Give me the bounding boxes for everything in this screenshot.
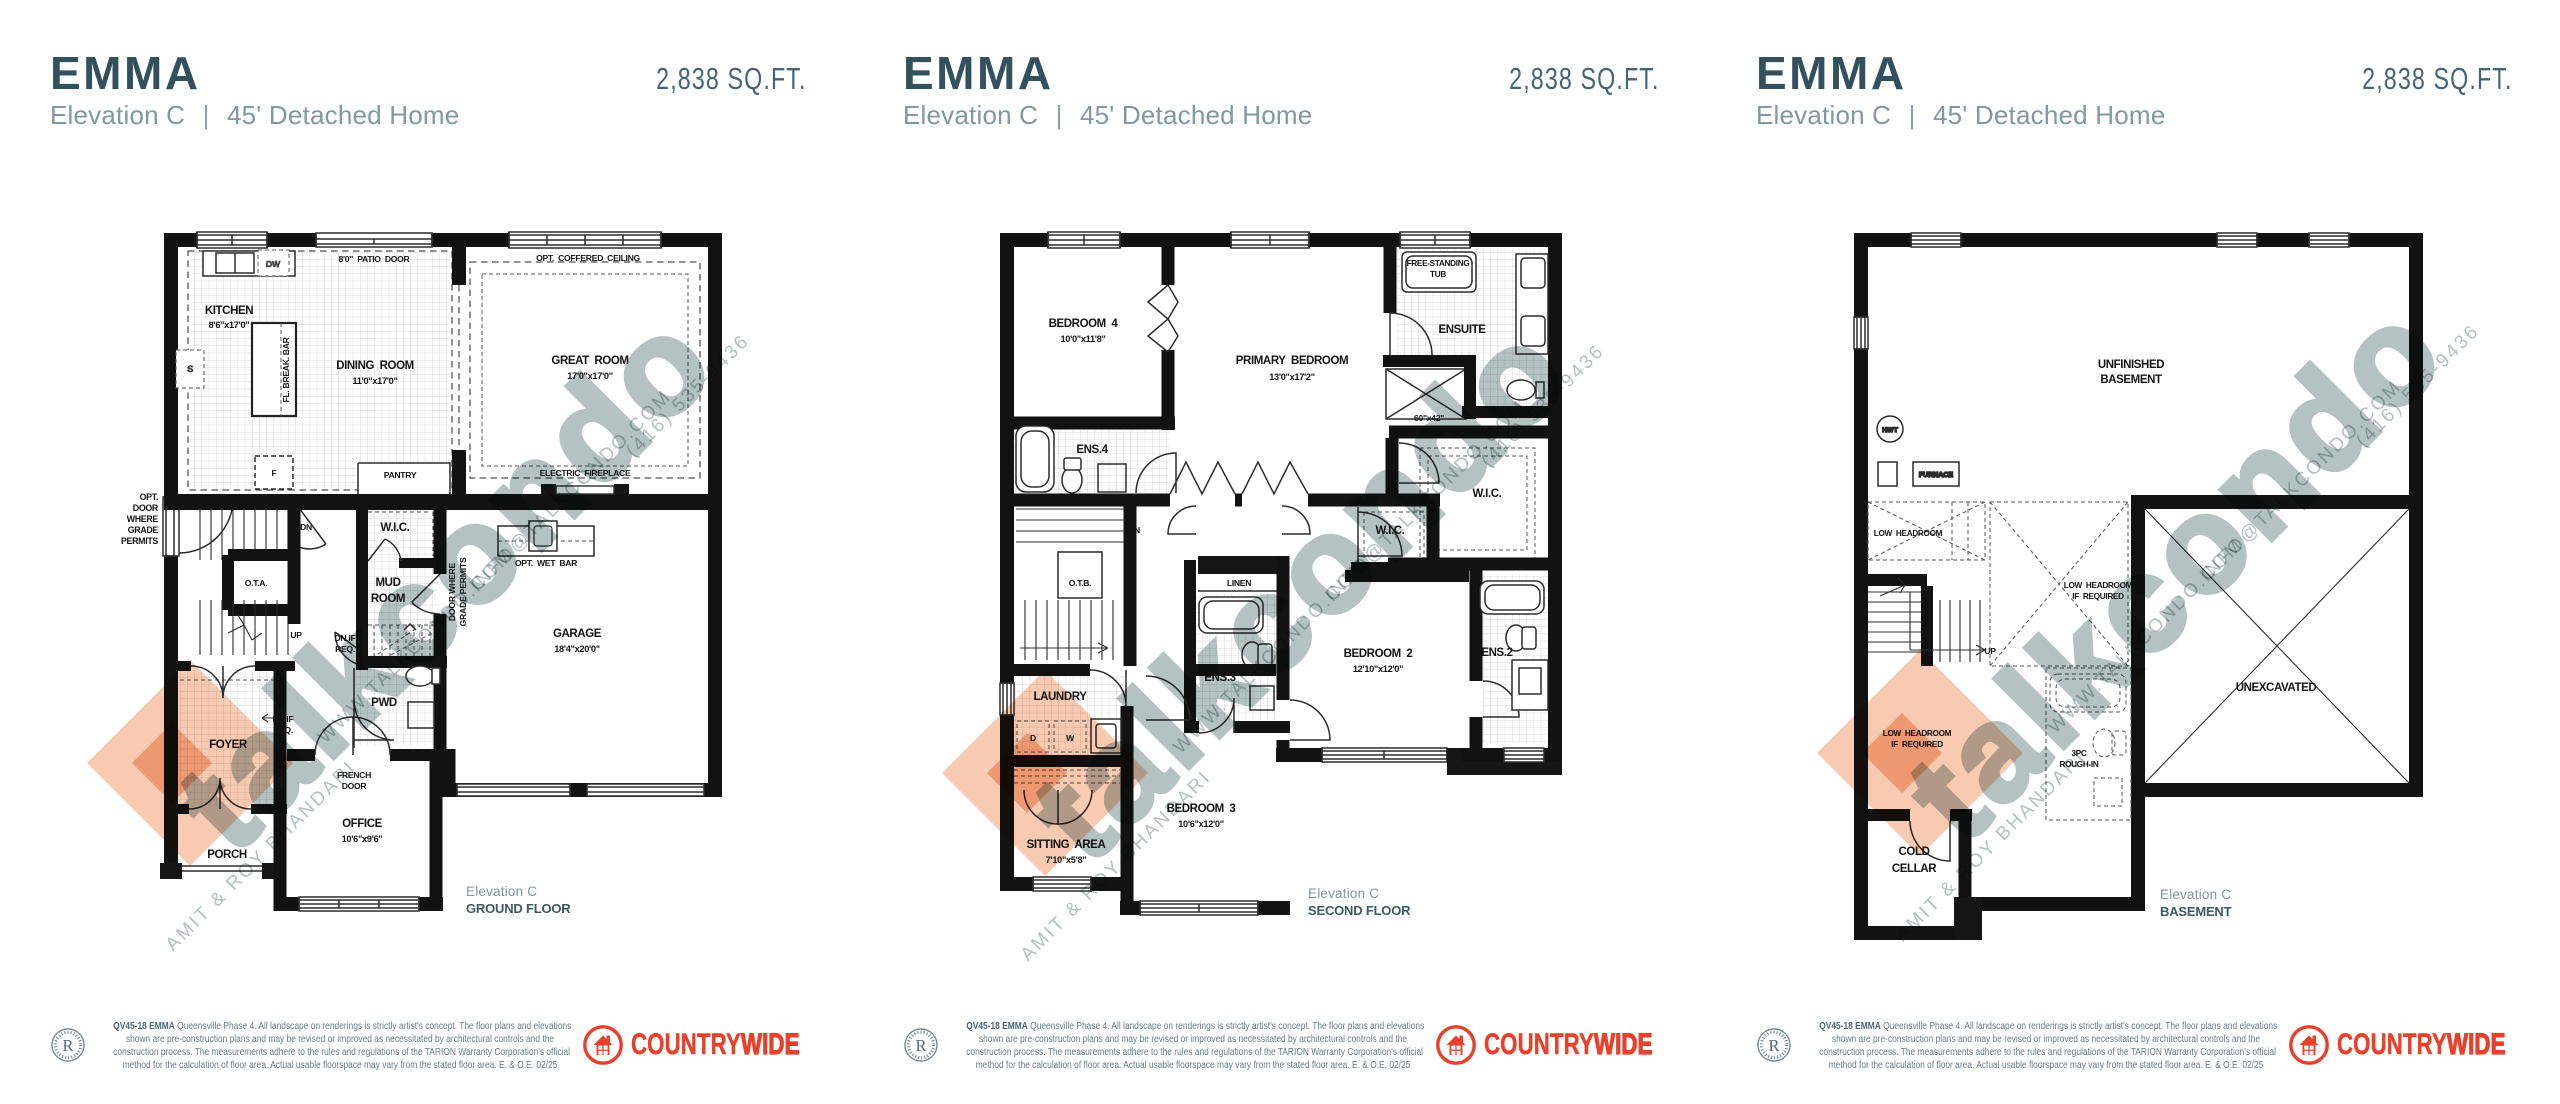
svg-text:S: S [187, 364, 193, 375]
svg-text:R: R [62, 1036, 73, 1055]
svg-text:10'6"x12'0": 10'6"x12'0" [1178, 819, 1224, 829]
svg-text:DOOR: DOOR [133, 503, 159, 513]
svg-text:11'0"x17'0": 11'0"x17'0" [352, 376, 397, 386]
svg-text:ENS.2: ENS.2 [1481, 647, 1512, 659]
svg-text:DN: DN [1128, 525, 1140, 535]
svg-text:LOW HEADROOM: LOW HEADROOM [1874, 529, 1943, 538]
svg-text:TUB: TUB [1430, 270, 1446, 279]
svg-text:8'0" PATIO DOOR: 8'0" PATIO DOOR [339, 254, 411, 264]
svg-text:ENS.4: ENS.4 [1076, 444, 1108, 456]
svg-text:BEDROOM 4: BEDROOM 4 [1049, 318, 1119, 330]
svg-text:PERMITS: PERMITS [121, 536, 158, 546]
svg-text:BASEMENT: BASEMENT [2100, 374, 2162, 386]
svg-text:BASEMENT: BASEMENT [2160, 904, 2232, 919]
svg-text:OFFICE: OFFICE [342, 818, 382, 830]
svg-text:GROUND FLOOR: GROUND FLOOR [466, 901, 571, 916]
svg-text:10'0"x11'8": 10'0"x11'8" [1060, 334, 1105, 344]
svg-text:F: F [272, 468, 277, 478]
svg-text:O.T.B.: O.T.B. [1069, 578, 1092, 588]
svg-text:Elevation C: Elevation C [2160, 887, 2231, 902]
svg-text:12'10"x12'0": 12'10"x12'0" [1353, 664, 1403, 674]
svg-text:Elevation C: Elevation C [466, 884, 537, 899]
svg-text:FL. BREAK. BAR: FL. BREAK. BAR [281, 336, 291, 402]
svg-text:8'6"x17'0": 8'6"x17'0" [209, 320, 250, 330]
svg-text:CELLAR: CELLAR [1892, 863, 1937, 875]
svg-text:O.T.A.: O.T.A. [245, 578, 268, 588]
svg-text:FREE-STANDING: FREE-STANDING [1407, 259, 1470, 268]
svg-text:13'0"x17'2": 13'0"x17'2" [1269, 372, 1315, 382]
svg-text:R: R [915, 1036, 926, 1055]
svg-text:R: R [1768, 1036, 1779, 1055]
svg-text:DW: DW [266, 259, 281, 269]
svg-text:Elevation C: Elevation C [1308, 886, 1379, 901]
svg-text:OPT.: OPT. [140, 492, 158, 502]
svg-text:10'6"x9'6": 10'6"x9'6" [342, 834, 383, 844]
svg-text:WHERE: WHERE [127, 514, 159, 524]
svg-text:18'4"x20'0": 18'4"x20'0" [554, 644, 600, 654]
svg-text:BEDROOM 2: BEDROOM 2 [1344, 648, 1413, 660]
svg-text:HWT: HWT [1882, 427, 1898, 434]
svg-text:OPT. COFFERED CEILING: OPT. COFFERED CEILING [536, 253, 640, 263]
svg-text:DINING ROOM: DINING ROOM [336, 360, 414, 372]
svg-text:PRIMARY BEDROOM: PRIMARY BEDROOM [1236, 355, 1348, 367]
svg-text:GARAGE: GARAGE [553, 628, 602, 640]
svg-text:GRADE: GRADE [128, 525, 159, 535]
svg-text:PANTRY: PANTRY [384, 470, 417, 480]
svg-text:UNFINISHED: UNFINISHED [2098, 359, 2164, 371]
svg-text:UNEXCAVATED: UNEXCAVATED [2236, 682, 2317, 694]
svg-text:SECOND FLOOR: SECOND FLOOR [1308, 903, 1411, 918]
svg-text:FURNACE: FURNACE [1919, 472, 1954, 479]
svg-text:KITCHEN: KITCHEN [205, 305, 253, 317]
